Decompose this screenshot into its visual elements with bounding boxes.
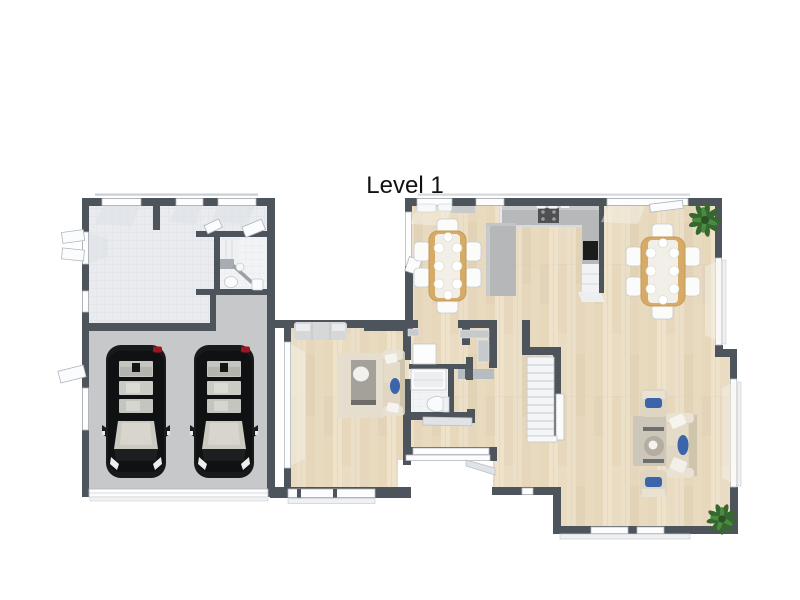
svg-text:Level 1: Level 1 [366,172,443,199]
